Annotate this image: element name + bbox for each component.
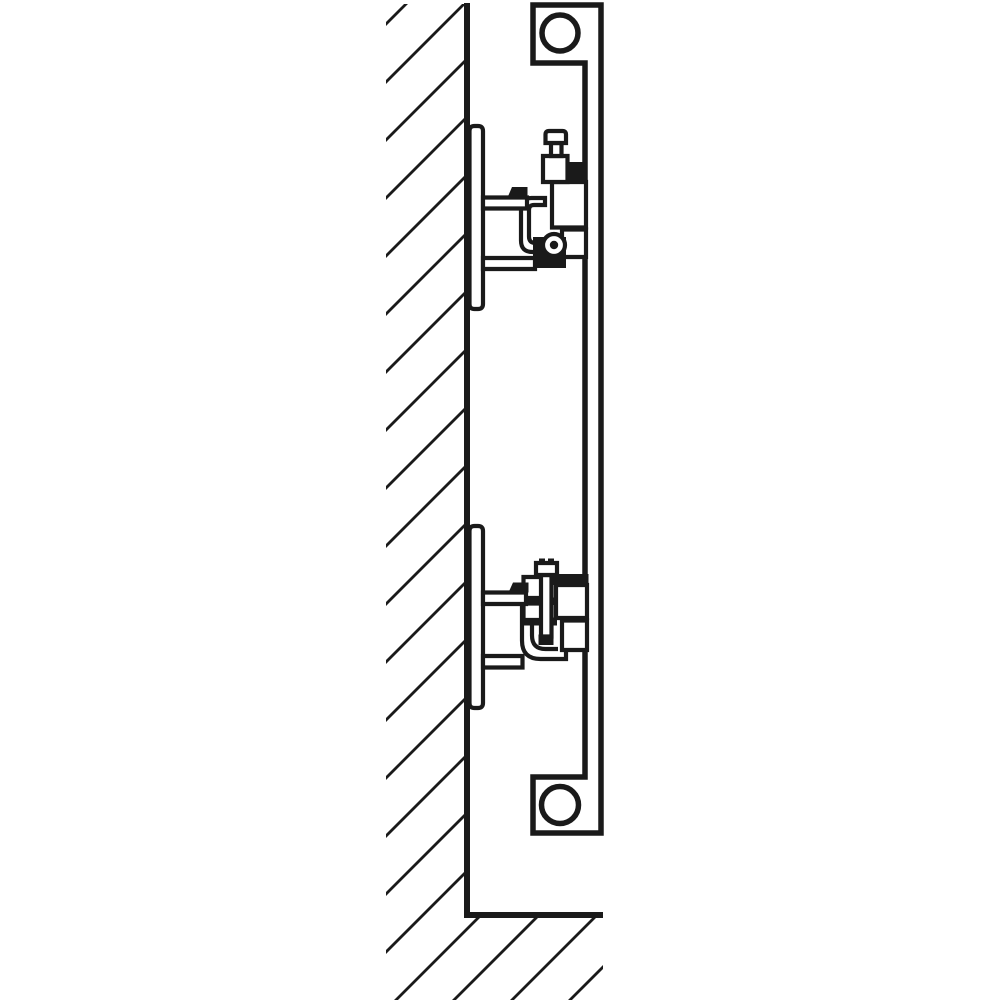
hatch-line [270,0,1000,1000]
bracket-top-lower-arm [483,258,535,269]
bracket-top-column [543,156,568,182]
hatch-line [0,0,816,1000]
hatch-line [0,0,642,1000]
panel-profile-outline [533,5,601,833]
technical-drawing [0,0,1000,1000]
panel-top-pipe-circle [542,15,578,51]
bracket-bottom-lug [556,585,587,618]
hatch-line [0,0,468,1000]
bracket-top-pivot-dot [550,241,558,249]
bracket-bottom-screw-shaft [541,575,552,637]
hatch-line [560,0,1000,1000]
bracket-top-lug [552,182,586,228]
hatch-line [0,0,526,1000]
hatch-line [444,0,1000,1000]
bracket-top [483,131,586,269]
mounting-bracket-section-diagram [0,0,1000,1000]
bracket-top-upper-arm [483,198,527,209]
bracket-bottom-block [562,621,587,651]
hatch-line [154,0,1000,1000]
bracket-bottom-screw-cap [536,563,557,575]
hatch-line [0,0,758,1000]
wall-section-hatch [0,0,1000,1000]
bracket-bottom-screw-tip [539,635,554,646]
hatch-line [96,0,1000,1000]
hatch-line [0,0,410,1000]
bracket-bottom-lower-arm [483,656,523,668]
hatch-line [0,0,874,1000]
bracket-bottom [483,559,589,668]
bracket-top-bolt-cap [546,131,567,143]
bracket-bottom-cap-nub-left [539,559,545,564]
bracket-bottom-arm-tab [509,583,529,593]
bracket-bottom-upper-arm [483,593,526,605]
hatch-line [212,0,1000,1000]
hatch-line [502,0,1000,1000]
hatch-line [0,0,990,1000]
bracket-bottom-cap-nub-right [548,559,554,564]
bracket-top-arm-tab [508,187,528,198]
hatch-line [38,0,1000,1000]
panel-bottom-pipe-circle [542,787,579,824]
wall-plate-bottom [470,526,484,708]
hatch-line [0,0,584,1000]
wall-plate-top [470,126,484,309]
